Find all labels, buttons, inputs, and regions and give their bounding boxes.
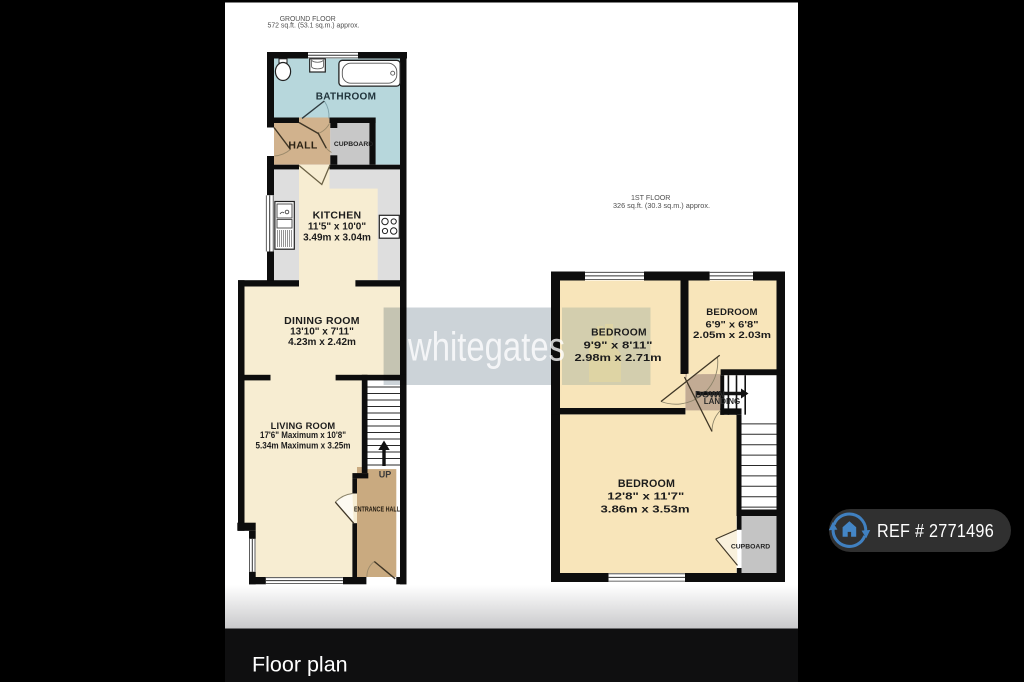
svg-text:BEDROOM: BEDROOM bbox=[618, 478, 675, 490]
svg-text:3.49m x 3.04m: 3.49m x 3.04m bbox=[303, 233, 371, 244]
svg-text:2.98m x 2.71m: 2.98m x 2.71m bbox=[575, 353, 662, 364]
svg-text:whitegates: whitegates bbox=[407, 324, 565, 370]
svg-text:Floor plan: Floor plan bbox=[252, 653, 348, 677]
svg-text:BEDROOM: BEDROOM bbox=[591, 328, 647, 339]
svg-text:2.05m x 2.03m: 2.05m x 2.03m bbox=[693, 329, 771, 340]
svg-text:326 sq.ft. (30.3 sq.m.) approx: 326 sq.ft. (30.3 sq.m.) approx. bbox=[613, 201, 710, 210]
svg-text:BATHROOM: BATHROOM bbox=[316, 91, 377, 102]
svg-text:12'8" x 11'7": 12'8" x 11'7" bbox=[607, 492, 684, 503]
svg-text:LANDING: LANDING bbox=[704, 397, 740, 406]
svg-text:3.86m x 3.53m: 3.86m x 3.53m bbox=[601, 505, 690, 516]
svg-text:9'9" x 8'11": 9'9" x 8'11" bbox=[584, 341, 653, 352]
svg-text:REF # 2771496: REF # 2771496 bbox=[877, 521, 994, 541]
svg-text:13'10" x 7'11": 13'10" x 7'11" bbox=[290, 327, 354, 338]
svg-text:ENTRANCE HALL: ENTRANCE HALL bbox=[354, 506, 401, 513]
svg-text:CUPBOARD: CUPBOARD bbox=[731, 544, 770, 551]
svg-text:HALL: HALL bbox=[288, 140, 317, 152]
svg-text:BEDROOM: BEDROOM bbox=[706, 307, 758, 318]
svg-text:5.34m Maximum x 3.25m: 5.34m Maximum x 3.25m bbox=[256, 441, 351, 451]
svg-text:17'6" Maximum x 10'8": 17'6" Maximum x 10'8" bbox=[260, 430, 346, 440]
svg-text:KITCHEN: KITCHEN bbox=[313, 210, 362, 222]
svg-text:4.23m x 2.42m: 4.23m x 2.42m bbox=[288, 337, 356, 348]
svg-text:DINING ROOM: DINING ROOM bbox=[284, 315, 360, 327]
svg-text:572 sq.ft. (53.1 sq.m.) approx: 572 sq.ft. (53.1 sq.m.) approx. bbox=[268, 21, 360, 30]
svg-text:6'9" x 6'8": 6'9" x 6'8" bbox=[706, 318, 759, 329]
svg-text:CUPBOARD: CUPBOARD bbox=[334, 141, 373, 148]
svg-text:11'5" x 10'0": 11'5" x 10'0" bbox=[308, 222, 366, 233]
svg-text:UP: UP bbox=[379, 470, 392, 480]
